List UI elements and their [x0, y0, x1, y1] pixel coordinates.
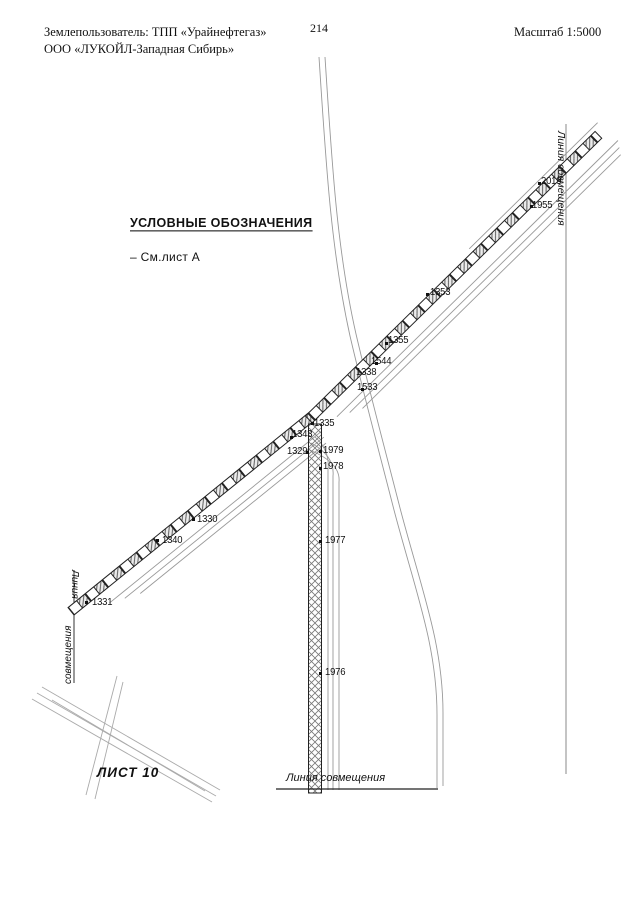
point-label: 1979	[323, 445, 343, 456]
survey-sheet-page: Землепользователь: ТПП «Урайнефтегаз» ОО…	[0, 0, 640, 905]
point-label: 1978	[323, 461, 343, 472]
point-label: 1955	[532, 200, 552, 211]
point-label: 1340	[162, 535, 182, 546]
pipeline-band-lower	[68, 410, 318, 615]
service-road-lines-upper	[318, 121, 626, 425]
point-label: 1343	[292, 429, 312, 440]
sheet-number-label: ЛИСТ 10	[97, 765, 159, 780]
match-line-label-bottom: Линия совмещения	[286, 772, 385, 784]
point-label: 1338	[356, 367, 376, 378]
point-label: 1355	[388, 335, 408, 346]
point-label: 1335	[314, 418, 334, 429]
point-label: 1329	[287, 446, 307, 457]
point-label: 1331	[92, 597, 112, 608]
vertical-corridor-band	[309, 424, 322, 793]
curved-road-line	[319, 57, 443, 788]
map-canvas	[0, 0, 640, 905]
point-label: 1976	[325, 667, 345, 678]
match-line-label-right: Линия совмещения	[555, 131, 567, 226]
point-label: 1533	[357, 382, 377, 393]
service-road-lines-lower	[109, 431, 329, 612]
sheet-boundary-lines	[32, 676, 220, 802]
point-label: 1544	[371, 356, 391, 367]
match-line-label-left-word2: совмещения	[63, 626, 74, 684]
point-label: 1330	[197, 514, 217, 525]
point-label: 1353	[430, 287, 450, 298]
match-line-label-left-word1: Линия	[69, 570, 80, 599]
point-label: 1977	[325, 535, 345, 546]
